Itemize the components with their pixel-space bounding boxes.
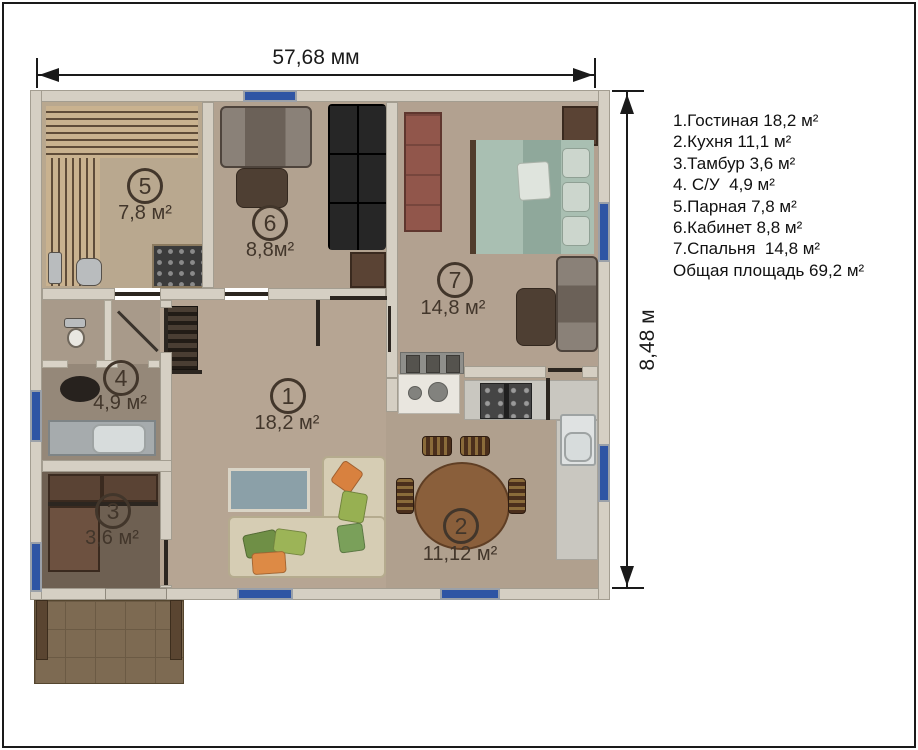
top-dimension-arrow-right-icon — [573, 68, 593, 82]
window-top-office — [243, 90, 297, 102]
window-bottom-living — [237, 588, 293, 600]
bedroom-door-leaf — [388, 306, 391, 352]
window-left-bath — [30, 390, 42, 442]
window-right-kitchen — [598, 444, 610, 502]
living-number-badge: 1 — [270, 378, 306, 414]
bedroom-wardrobe — [404, 112, 442, 232]
legend-line-living: 1.Гостиная 18,2 м² — [673, 110, 911, 131]
wall-bedroom-bottom-a — [464, 366, 546, 378]
bath-wc-toilet — [67, 328, 85, 348]
kitchen-bar-stool-1 — [406, 355, 420, 373]
legend-line-bath: 4. С/У 4,9 м² — [673, 174, 911, 195]
wall-outer-right — [598, 90, 610, 600]
living-area-label: 18,2 м² — [237, 412, 337, 435]
office-cabinet — [350, 252, 386, 288]
entry-door-to-living — [164, 540, 168, 585]
kitchen-chair-2 — [460, 436, 490, 456]
kitchen-stove — [480, 383, 532, 419]
kitchen-bar-stool-2 — [426, 355, 440, 373]
right-dimension-line — [626, 92, 628, 588]
office-number-badge: 6 — [252, 205, 288, 241]
bath-cubicle-divider-wall — [104, 300, 112, 364]
bedroom-number-badge: 7 — [437, 262, 473, 298]
sauna-area-label: 7,8 м² — [95, 202, 195, 225]
living-coffee-table — [228, 468, 310, 512]
wall-outer-left — [30, 90, 42, 600]
bath-door — [164, 308, 168, 352]
kitchen-door-rail — [548, 368, 582, 372]
top-dimension-line — [37, 74, 595, 76]
porch-post-right — [170, 600, 182, 660]
kitchen-chair-4 — [508, 478, 526, 514]
top-dimension-arrow-left-icon — [39, 68, 59, 82]
bath-cubicle-wall-c — [148, 360, 160, 368]
office-door-leaf — [316, 300, 320, 346]
sauna-door — [115, 292, 160, 296]
kitchen-area-label: 11,12 м² — [410, 543, 510, 566]
legend-line-kitchen: 2.Кухня 11,1 м² — [673, 131, 911, 152]
wall-hall-top-b — [160, 288, 225, 300]
bedroom-pillow-2 — [562, 182, 590, 212]
right-dimension-arrow-up-icon — [620, 94, 634, 114]
window-right-bedroom — [598, 202, 610, 262]
porch-post-left — [36, 600, 48, 660]
window-bottom-kitchen — [440, 588, 500, 600]
kitchen-hob-large — [428, 382, 448, 402]
window-left-entry — [30, 542, 42, 592]
right-dimension-tick-bottom — [612, 587, 644, 589]
bath-sink — [92, 424, 146, 454]
right-dimension-label: 8,48 м — [636, 280, 660, 400]
wall-bath-living-b — [160, 352, 172, 540]
kitchen-hob-small — [408, 386, 422, 400]
legend-line-entry: 3.Тамбур 3,6 м² — [673, 153, 911, 174]
front-door — [105, 588, 167, 600]
kitchen-bar-stool-3 — [446, 355, 460, 373]
sauna-bench-top — [46, 106, 198, 158]
entry-cabinet-1 — [48, 474, 102, 502]
bedroom-pillow-3 — [562, 216, 590, 246]
wall-living-kitchen-stub — [386, 378, 398, 412]
bedroom-pillow-1 — [562, 148, 590, 178]
living-pillow-orange-2 — [251, 551, 286, 575]
bath-cubicle-floor — [42, 300, 160, 364]
legend-line-total: Общая площадь 69,2 м² — [673, 260, 911, 281]
wall-bedroom-bottom-b — [582, 366, 598, 378]
bath-number-badge: 4 — [103, 360, 139, 396]
top-dimension-tick-right — [594, 58, 596, 88]
entry-area-label: 3,6 м² — [62, 527, 162, 550]
bedroom-desk — [556, 256, 598, 352]
office-sofa — [328, 104, 386, 250]
bedroom-door-rail — [330, 296, 387, 300]
legend-line-bedroom: 7.Спальня 14,8 м² — [673, 238, 911, 259]
right-dimension-tick-top — [612, 90, 644, 92]
entry-number-badge: 3 — [95, 493, 131, 529]
sauna-stove-heater — [152, 244, 204, 288]
bath-wc-tank — [64, 318, 86, 328]
wall-outer-top — [30, 90, 610, 102]
kitchen-sink-basin — [564, 432, 592, 462]
kitchen-chair-3 — [396, 478, 414, 514]
porch — [34, 600, 184, 684]
sauna-bucket — [48, 252, 62, 284]
bath-area-label: 4,9 м² — [70, 392, 170, 415]
sauna-ladle — [76, 258, 102, 286]
office-door-rail — [225, 292, 268, 296]
sauna-number-badge: 5 — [127, 168, 163, 204]
office-desk — [220, 106, 312, 168]
legend: 1.Гостиная 18,2 м² 2.Кухня 11,1 м² 3.Там… — [673, 110, 911, 281]
top-dimension-tick-left — [36, 58, 38, 88]
office-chair — [236, 168, 288, 208]
wall-bath-tambour — [42, 460, 172, 472]
wall-sauna-office — [202, 102, 214, 288]
floor-plan-canvas: 57,68 мм 8,48 м 1.Гостиная 18,2 м² 2.Кух… — [0, 0, 918, 750]
kitchen-number-badge: 2 — [443, 508, 479, 544]
bedroom-area-label: 14,8 м² — [403, 297, 503, 320]
wall-hall-top-a — [42, 288, 115, 300]
living-pillow-green-1 — [338, 490, 369, 524]
bedroom-cushion — [517, 161, 552, 201]
kitchen-chair-1 — [422, 436, 452, 456]
wall-bath-living-a — [160, 300, 172, 308]
right-dimension-arrow-down-icon — [620, 566, 634, 586]
bedroom-chair — [516, 288, 556, 346]
bath-cubicle-wall-a — [42, 360, 68, 368]
living-pillow-green-2 — [336, 522, 366, 553]
top-dimension-label: 57,68 мм — [236, 46, 396, 70]
kitchen-door-leaf — [546, 378, 550, 420]
office-area-label: 8,8м² — [220, 239, 320, 262]
legend-line-sauna: 5.Парная 7,8 м² — [673, 196, 911, 217]
legend-line-office: 6.Кабинет 8,8 м² — [673, 217, 911, 238]
